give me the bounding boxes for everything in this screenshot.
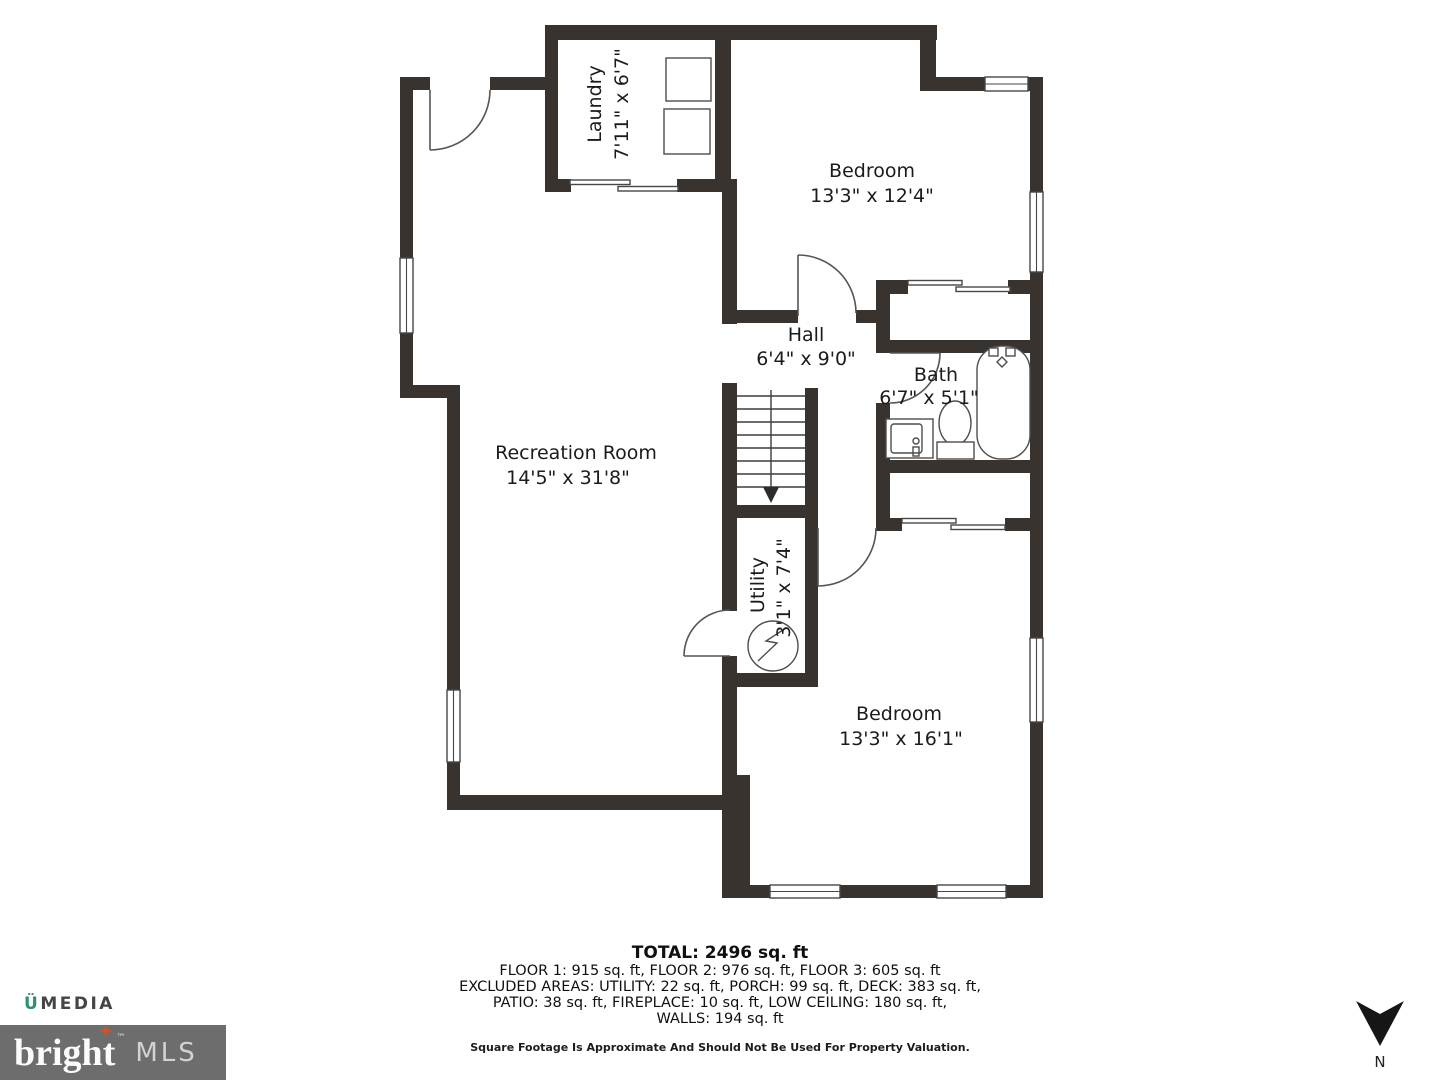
stairs-down-arrow <box>763 487 779 503</box>
room-label-bedroom2-name: Bedroom <box>856 703 942 725</box>
window <box>400 258 413 333</box>
room-label-bedroom1-name: Bedroom <box>829 160 915 182</box>
room-label-utility-name: Utility <box>747 557 769 613</box>
north-arrow-icon <box>1356 1001 1404 1046</box>
floor-sqft-line: FLOOR 1: 915 sq. ft, FLOOR 2: 976 sq. ft… <box>0 963 1440 979</box>
star-icon: ✦ <box>100 1025 113 1040</box>
window <box>770 885 840 898</box>
bright-wordmark: bright✦™ <box>14 1034 125 1072</box>
mls-text: MLS <box>135 1038 197 1068</box>
door-utility <box>684 610 730 656</box>
door-recreation <box>430 90 490 150</box>
laundry-appliances <box>664 58 711 154</box>
floor-plan-page: Laundry 7'11" x 6'7" Bedroom 13'3" x 12'… <box>0 0 1440 1080</box>
floor-plan-drawing: Laundry 7'11" x 6'7" Bedroom 13'3" x 12'… <box>0 0 1440 1080</box>
excluded-areas-line1: EXCLUDED AREAS: UTILITY: 22 sq. ft, PORC… <box>0 979 1440 995</box>
room-label-bath-name: Bath <box>914 364 958 386</box>
north-arrow: N <box>1340 995 1420 1075</box>
room-label-bedroom1-dims: 13'3" x 12'4" <box>810 185 934 207</box>
total-sqft: TOTAL: 2496 sq. ft <box>0 945 1440 962</box>
room-label-utility-dims: 3'1" x 7'4" <box>773 538 795 638</box>
sliding-door-laundry <box>570 180 678 191</box>
bathtub <box>977 346 1030 459</box>
window <box>937 885 1006 898</box>
bright-letter-t: t✦ <box>103 1034 116 1072</box>
room-label-recreation-dims: 14'5" x 31'8" <box>506 467 630 489</box>
room-label-bedroom2-dims: 13'3" x 16'1" <box>839 728 963 750</box>
windows <box>400 77 1043 898</box>
umedia-logo-u: Ü <box>24 994 40 1014</box>
bright-mls-logo: bright✦™ MLS <box>0 1025 226 1080</box>
window <box>985 77 1028 91</box>
toilet-tank <box>937 442 974 459</box>
umedia-logo: ÜMEDIA <box>24 994 115 1014</box>
north-label: N <box>1374 1053 1385 1071</box>
door-bedroom-top <box>798 255 856 316</box>
sliding-door-closet-bottom <box>902 519 1005 530</box>
room-label-bath-dims: 6'7" x 5'1" <box>879 387 979 409</box>
room-label-hall-dims: 6'4" x 9'0" <box>756 348 856 370</box>
trademark-symbol: ™ <box>116 1033 125 1043</box>
room-label-laundry-name: Laundry <box>584 65 606 142</box>
room-label-hall-name: Hall <box>788 324 825 346</box>
door-bedroom-bottom <box>818 528 876 586</box>
tub-faucet-right <box>1006 348 1015 356</box>
dryer <box>664 109 710 154</box>
excluded-areas-line2: PATIO: 38 sq. ft, FIREPLACE: 10 sq. ft, … <box>0 995 1440 1011</box>
room-label-laundry-dims: 7'11" x 6'7" <box>611 48 633 160</box>
window <box>1030 638 1043 722</box>
umedia-logo-text: MEDIA <box>40 994 115 1014</box>
window <box>1030 192 1043 272</box>
room-label-recreation-name: Recreation Room <box>495 442 657 464</box>
stairs <box>737 390 805 503</box>
bright-text: brigh <box>14 1032 103 1074</box>
tub-faucet-left <box>989 348 998 356</box>
washer <box>666 58 711 101</box>
sliding-door-closet-top <box>908 281 1010 292</box>
sink-vanity <box>886 419 933 458</box>
window <box>447 690 460 762</box>
